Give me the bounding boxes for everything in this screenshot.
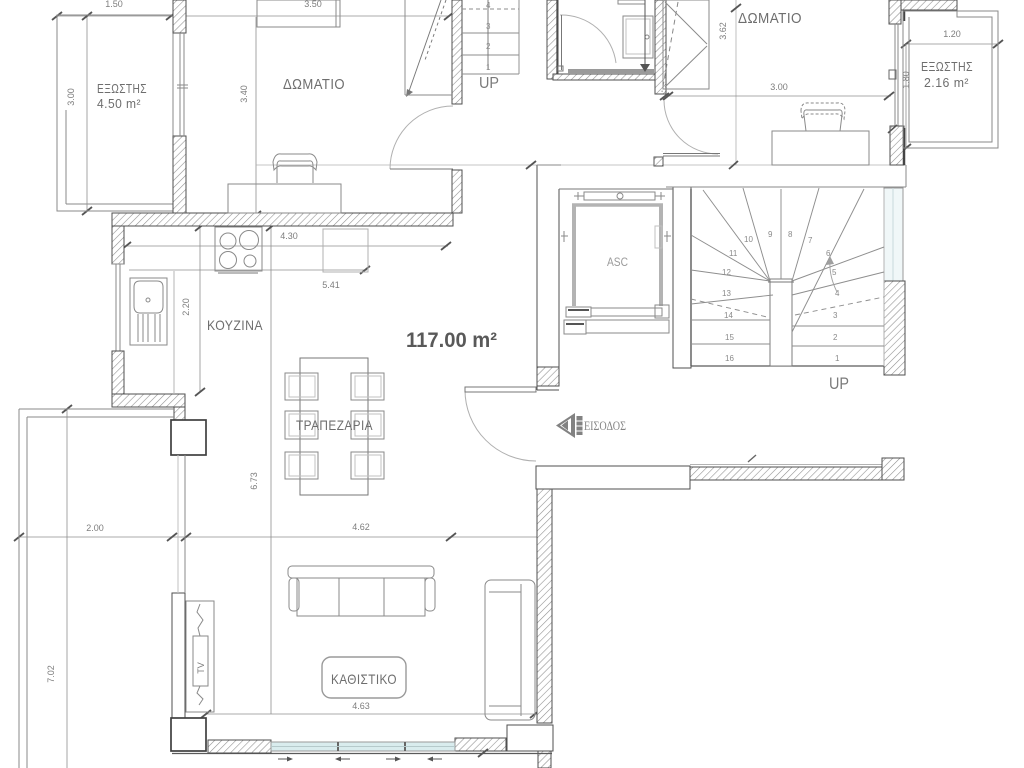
svg-text:1.50: 1.50 xyxy=(105,0,123,9)
svg-text:ΚΟΥΖΙΝΑ: ΚΟΥΖΙΝΑ xyxy=(207,317,263,333)
svg-text:16: 16 xyxy=(725,354,734,363)
svg-text:3.40: 3.40 xyxy=(239,85,249,103)
svg-text:3: 3 xyxy=(833,311,838,320)
svg-text:2.00: 2.00 xyxy=(86,523,104,533)
svg-text:1: 1 xyxy=(835,354,840,363)
svg-text:2: 2 xyxy=(486,42,491,51)
svg-text:3.62: 3.62 xyxy=(718,22,728,40)
svg-text:2: 2 xyxy=(833,333,838,342)
svg-text:117.00 m²: 117.00 m² xyxy=(406,329,497,352)
svg-text:4.50 m²: 4.50 m² xyxy=(97,96,141,111)
svg-text:ΕΙΣΟΔΟΣ: ΕΙΣΟΔΟΣ xyxy=(584,419,626,433)
svg-text:7.02: 7.02 xyxy=(46,665,56,683)
svg-text:4: 4 xyxy=(835,289,840,298)
svg-text:2.20: 2.20 xyxy=(181,298,191,316)
svg-text:4.63: 4.63 xyxy=(352,701,370,711)
svg-text:4.30: 4.30 xyxy=(280,231,298,241)
svg-text:6: 6 xyxy=(826,249,831,258)
svg-text:ΕΞΩΣΤΗΣ: ΕΞΩΣΤΗΣ xyxy=(921,59,973,74)
svg-text:3.50: 3.50 xyxy=(304,0,322,9)
svg-text:5.41: 5.41 xyxy=(322,280,340,290)
svg-text:ASC: ASC xyxy=(607,255,628,269)
svg-text:ΚΑΘΙΣΤΙΚΟ: ΚΑΘΙΣΤΙΚΟ xyxy=(331,671,397,687)
svg-text:1.20: 1.20 xyxy=(943,29,961,39)
svg-text:3.00: 3.00 xyxy=(66,88,76,106)
svg-text:9: 9 xyxy=(768,230,773,239)
svg-text:1: 1 xyxy=(486,63,491,72)
svg-text:UP: UP xyxy=(829,374,849,393)
svg-text:TV: TV xyxy=(196,662,206,674)
svg-text:12: 12 xyxy=(722,268,731,277)
svg-text:ΕΞΩΣΤΗΣ: ΕΞΩΣΤΗΣ xyxy=(97,81,147,96)
svg-text:13: 13 xyxy=(722,289,731,298)
svg-text:4: 4 xyxy=(486,1,491,10)
svg-text:8: 8 xyxy=(788,230,793,239)
svg-text:10: 10 xyxy=(744,235,753,244)
svg-text:UP: UP xyxy=(479,75,499,92)
svg-text:ΤΡΑΠΕΖΑΡΙΑ: ΤΡΑΠΕΖΑΡΙΑ xyxy=(296,417,373,433)
svg-text:ΔΩΜΑΤΙΟ: ΔΩΜΑΤΙΟ xyxy=(738,10,802,27)
svg-text:2.16 m²: 2.16 m² xyxy=(924,75,969,90)
svg-text:3: 3 xyxy=(486,22,491,31)
svg-text:14: 14 xyxy=(724,311,733,320)
svg-text:15: 15 xyxy=(725,333,734,342)
svg-text:4.62: 4.62 xyxy=(352,522,370,532)
svg-text:5: 5 xyxy=(832,268,837,277)
svg-text:3.00: 3.00 xyxy=(770,82,788,92)
svg-text:1.80: 1.80 xyxy=(901,71,911,89)
svg-text:7: 7 xyxy=(808,236,813,245)
svg-text:ΔΩΜΑΤΙΟ: ΔΩΜΑΤΙΟ xyxy=(283,76,345,93)
svg-text:11: 11 xyxy=(729,249,738,258)
svg-text:6.73: 6.73 xyxy=(249,472,259,490)
